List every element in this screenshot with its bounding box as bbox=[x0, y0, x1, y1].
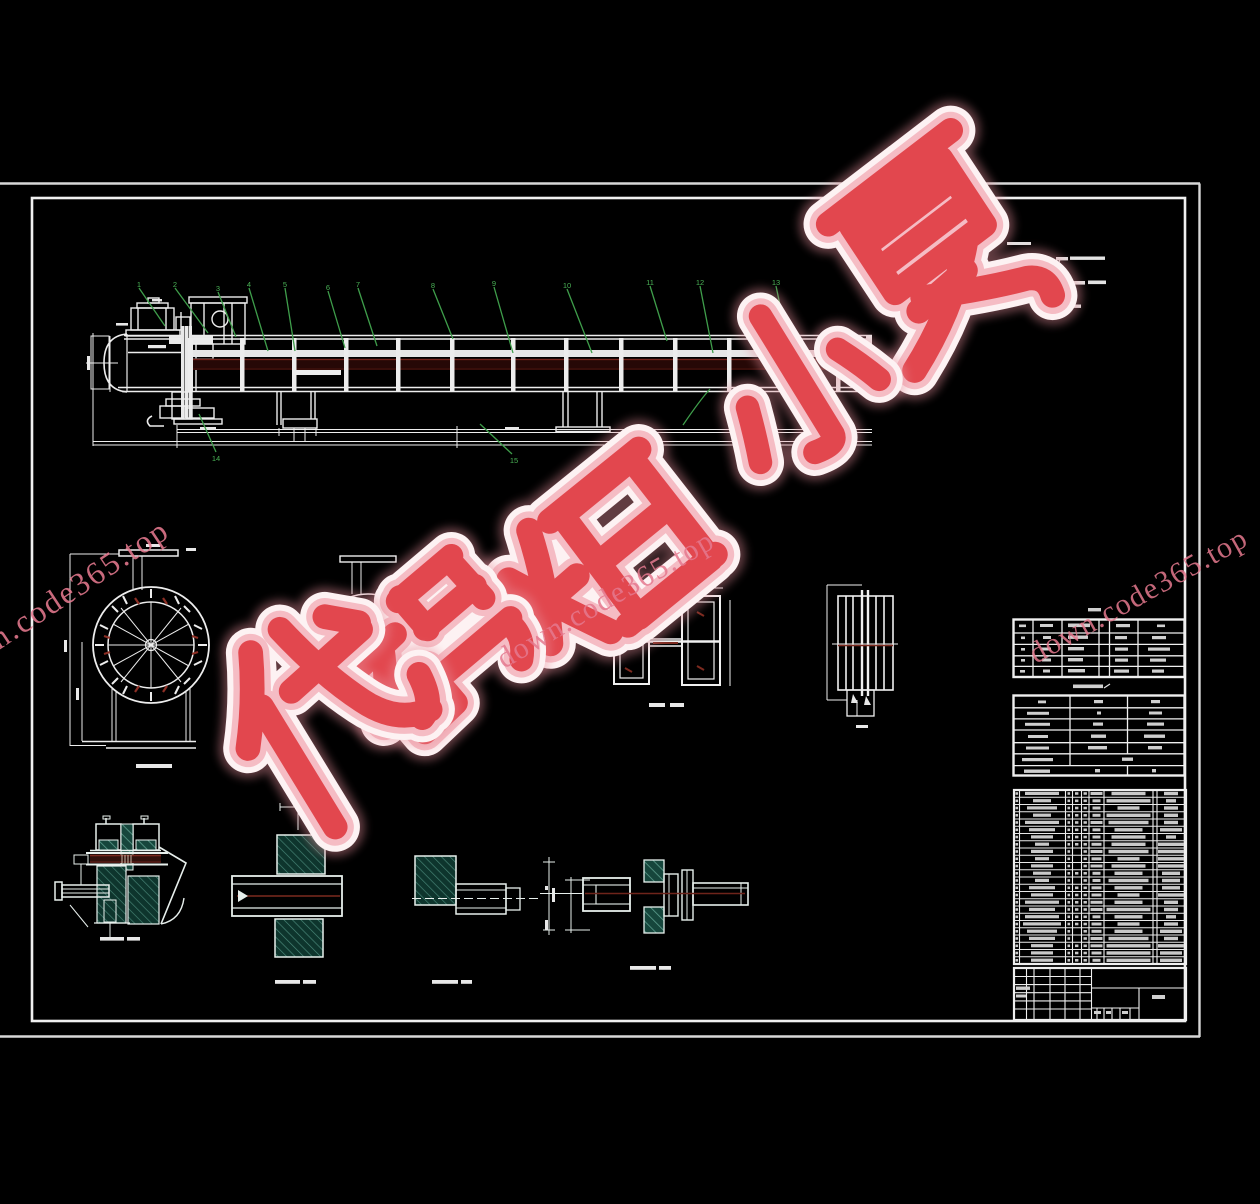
svg-text:5: 5 bbox=[283, 280, 287, 289]
svg-text:15: 15 bbox=[510, 456, 518, 465]
svg-text:11: 11 bbox=[646, 278, 654, 287]
svg-text:10: 10 bbox=[563, 281, 571, 290]
svg-text:8: 8 bbox=[431, 281, 435, 290]
svg-text:2: 2 bbox=[173, 280, 177, 289]
svg-text:14: 14 bbox=[212, 454, 220, 463]
svg-text:6: 6 bbox=[326, 283, 330, 292]
svg-text:13: 13 bbox=[772, 278, 780, 287]
svg-text:12: 12 bbox=[696, 278, 704, 287]
svg-text:1: 1 bbox=[137, 280, 141, 289]
svg-text:3: 3 bbox=[216, 284, 220, 293]
svg-text:9: 9 bbox=[492, 279, 496, 288]
svg-text:4: 4 bbox=[247, 280, 251, 289]
svg-text:7: 7 bbox=[356, 280, 360, 289]
